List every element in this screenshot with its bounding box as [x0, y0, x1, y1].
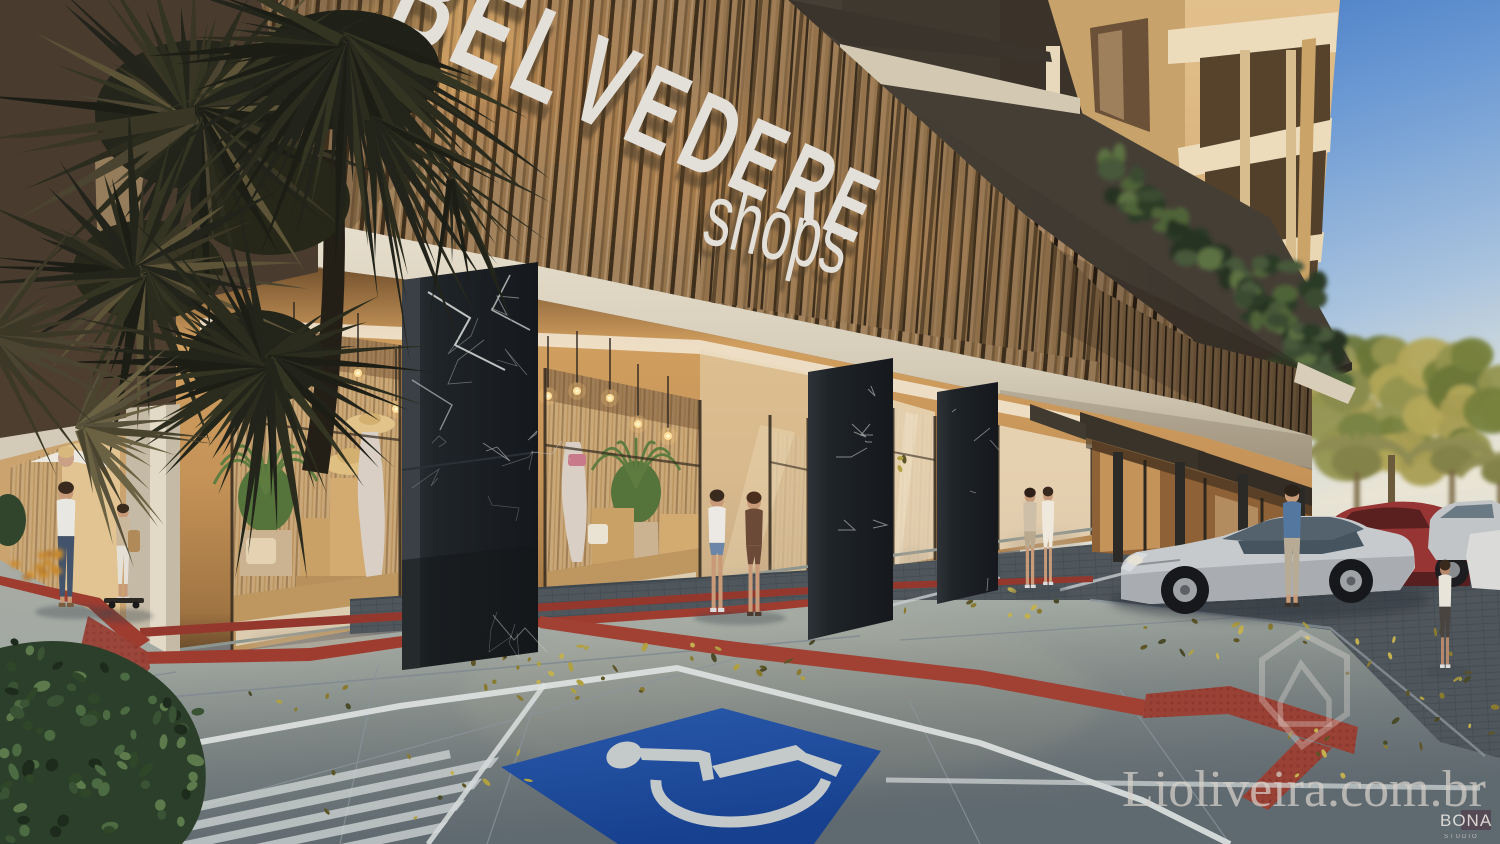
svg-text:STUDIO: STUDIO	[1444, 834, 1479, 840]
svg-text:Lioliveira.com.br: Lioliveira.com.br	[1122, 761, 1486, 818]
svg-text:BONA: BONA	[1440, 811, 1492, 830]
